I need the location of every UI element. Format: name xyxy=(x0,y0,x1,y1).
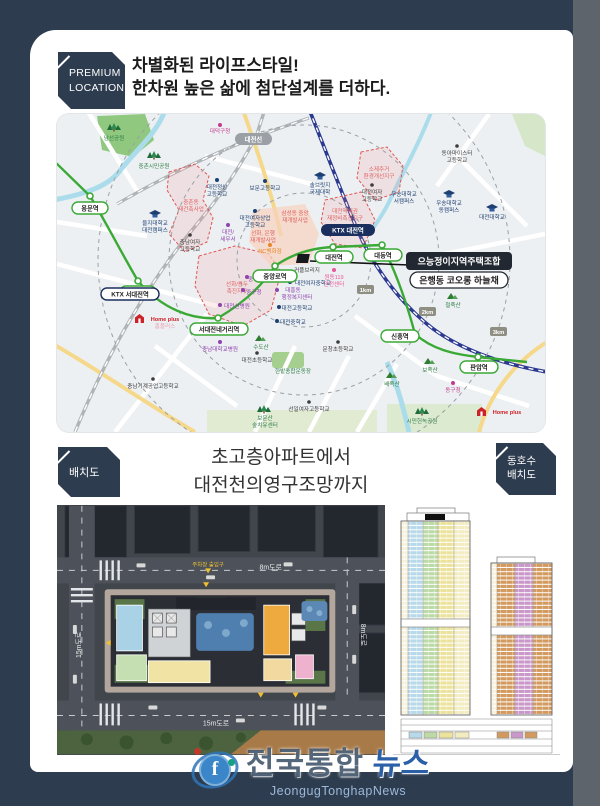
landmark-dot xyxy=(226,223,230,227)
landmark-label: 문창초등학교 xyxy=(323,345,354,353)
headline-line2: 한차원 높은 삶에 첨단설계를 더하다. xyxy=(132,77,390,100)
landmark-label: 충남여자 xyxy=(180,238,201,246)
legend-swatch-orange xyxy=(497,732,509,738)
mountain-label: 철죽산 xyxy=(445,301,460,309)
park-label: 숲치유센터 xyxy=(252,421,278,429)
landmark-label: 충남대학교병원 xyxy=(202,345,238,353)
unit-layout-badge-line1: 동호수 xyxy=(507,455,556,469)
landmark-label: 중구청 xyxy=(246,289,261,296)
road-label-right: 8m도로 xyxy=(359,624,367,647)
road-label-bottom: 15m도로 xyxy=(203,719,230,727)
landmark-label: 대전캠퍼스 xyxy=(142,226,168,234)
logo-dot-red xyxy=(194,748,201,755)
tower-right xyxy=(491,557,552,715)
unit-layout-badge: 동호수 배치도 xyxy=(496,443,556,495)
homeplus-label: Home plus xyxy=(151,317,180,323)
zone-label: 재정비촉진지구 xyxy=(327,214,363,222)
landmark-label: 대전중학교 xyxy=(280,318,306,326)
tower-left xyxy=(401,508,470,715)
zone-label: 선화/용두 xyxy=(226,280,248,288)
rail-label: 대전선 xyxy=(245,135,263,144)
landmark-label: 동아마이스터 xyxy=(442,149,473,157)
landmark-dot xyxy=(268,243,272,247)
landmark-dot xyxy=(332,268,336,272)
svg-text:서대전네거리역: 서대전네거리역 xyxy=(199,325,240,334)
watermark-title-part1: 전국통합 xyxy=(246,738,364,783)
legend-swatch-purple xyxy=(511,732,523,738)
location-map-svg: 남선공원 중촌시민공원 한밭종합운동장 보문산 숲치유센터 시민헌녹공원 수도산… xyxy=(57,114,545,432)
unit-layout-badge-line2: 배치도 xyxy=(507,469,556,483)
site-plan-badge-label: 배치도 xyxy=(69,464,120,480)
site-plan: 주차장 출입구 8m도로 15m도로 15m도로 8m도로 xyxy=(57,505,385,755)
landmark-label: 고등학교 xyxy=(447,156,468,164)
landmark-label: 대전대학교 xyxy=(479,213,505,221)
park-label: 보문산 xyxy=(257,414,272,422)
premium-location-badge: PREMIUM LOCATION xyxy=(58,52,125,109)
homeplus-sub-label: 홈플러스 xyxy=(155,322,176,330)
landmark-label: 고등학교 xyxy=(207,190,228,198)
zone-label: 중촌동 xyxy=(183,198,198,206)
landmark-label: 안전센터 xyxy=(324,280,345,288)
landmark-label: 솔브릿지 xyxy=(310,181,331,189)
landmark-dot xyxy=(275,319,279,323)
zone-label: 선화, 은행 xyxy=(251,229,275,237)
landmark-label: 국제대학 xyxy=(310,188,331,196)
zone-label: 삼성동 중앙 xyxy=(281,209,308,217)
road-label-left: 15m도로 xyxy=(75,631,83,658)
landmark-label: 선일여자고등학교 xyxy=(288,405,329,413)
landmark-label: 대전/ xyxy=(222,228,234,236)
landmark-label: 세무서 xyxy=(220,235,235,243)
unit-layout-chart xyxy=(393,505,560,755)
svg-text:중앙로역: 중앙로역 xyxy=(263,272,286,281)
landmark-label: 고등학교 xyxy=(245,221,266,229)
zone-label: 재개발사업 xyxy=(282,216,308,224)
landmark-label: 대덕구청 xyxy=(210,127,231,135)
landmark-label: 대전고등학교 xyxy=(282,304,313,312)
landmark-label: 대전초등학교 xyxy=(242,356,273,364)
landmark-label: 원동119 xyxy=(324,273,343,281)
park-label: 남선공원 xyxy=(104,134,125,142)
svg-text:KTX 대전역: KTX 대전역 xyxy=(332,226,364,235)
landmark-label: 보문고등학교 xyxy=(250,184,281,192)
watermark-text: 전국통합 뉴스 JeongugTonghapNews xyxy=(246,738,430,798)
legend-swatch-orange2 xyxy=(525,732,537,738)
zone-label: 재개발사업 xyxy=(250,236,276,244)
zone-label: 재건축사업 xyxy=(178,205,204,213)
flyer-card: PREMIUM LOCATION 차별화된 라이프스타일! 한차원 높은 삶에 … xyxy=(30,30,573,772)
mountain-label: 수도산 xyxy=(253,343,268,351)
landmark-dot xyxy=(218,303,222,307)
landmark-label: 고등학교 xyxy=(180,245,201,253)
svg-text:용문역: 용문역 xyxy=(81,204,99,213)
site-marker-icon xyxy=(296,254,310,263)
logo-circle: f xyxy=(199,754,231,786)
callout-line2: 은행동 코오롱 하늘채 xyxy=(419,275,499,286)
landmark-label: 우송대학교 xyxy=(391,190,417,198)
landmark-label: 동캠퍼스 xyxy=(439,206,460,214)
landmark-label: 고등학교 xyxy=(362,195,383,203)
section2-heading-line1: 초고층아파트에서 xyxy=(126,444,436,472)
landmark-dot xyxy=(263,179,267,183)
badge-line1: PREMIUM xyxy=(69,66,125,80)
landmark-label: 을지대학교 xyxy=(142,219,168,227)
zone-label: 환경개선지구 xyxy=(364,172,395,180)
mountain-label: 보족산 xyxy=(422,366,437,374)
headline-line1: 차별화된 라이프스타일! xyxy=(132,54,390,77)
landmark-dot xyxy=(277,305,281,309)
svg-text:신흥역: 신흥역 xyxy=(391,332,409,341)
landmark-dot xyxy=(455,144,459,148)
news-logo-icon: f xyxy=(190,745,236,791)
landmark-dot xyxy=(370,183,374,187)
site-plan-svg: 주차장 출입구 8m도로 15m도로 15m도로 8m도로 xyxy=(57,505,385,755)
site-marker-label: 커플브리지 xyxy=(294,266,320,274)
badge-line2: LOCATION xyxy=(69,81,125,95)
mountain-label: 배족산 xyxy=(384,380,399,388)
unit-layout-svg xyxy=(393,505,560,755)
landmark-dot xyxy=(218,123,222,127)
svg-text:3km: 3km xyxy=(493,330,505,336)
landmark-label: 우송대학교 xyxy=(436,199,462,207)
park-label: 한밭종합운동장 xyxy=(275,367,311,375)
svg-text:판암역: 판암역 xyxy=(470,363,488,372)
landmark-label: 대흥동 xyxy=(285,286,300,294)
landmark-dot xyxy=(307,400,311,404)
section2-heading: 초고층아파트에서 대전천의영구조망까지 xyxy=(126,444,436,499)
green-area-south xyxy=(207,410,377,432)
svg-text:대전역: 대전역 xyxy=(325,253,343,262)
zone-label: 대전역세권 xyxy=(332,207,358,215)
landmark-dot xyxy=(151,377,155,381)
badge-accent-line xyxy=(57,450,70,463)
landmark-label: 대전여자 xyxy=(362,188,383,196)
callout-line1: 으능정이지역주택조합 xyxy=(418,256,502,267)
landmark-dot xyxy=(241,288,245,292)
news-watermark: f 전국통합 뉴스 JeongugTonghapNews xyxy=(130,738,490,798)
landmark-label: 대전여자상업 xyxy=(240,214,271,222)
park-label: 중촌시민공원 xyxy=(139,162,170,170)
landmark-label: NC백화점 xyxy=(258,247,282,255)
landmark-dot xyxy=(253,209,257,213)
svg-text:KTX 서대전역: KTX 서대전역 xyxy=(111,290,149,299)
watermark-subtitle: JeongugTonghapNews xyxy=(270,784,406,798)
headline: 차별화된 라이프스타일! 한차원 높은 삶에 첨단설계를 더하다. xyxy=(132,54,390,101)
frame-right-strip xyxy=(573,0,600,806)
landmark-label: 대전정상 xyxy=(207,183,228,191)
landmark-dot xyxy=(336,340,340,344)
landmark-dot xyxy=(188,233,192,237)
gate-label: 주차장 출입구 xyxy=(192,560,224,568)
landmark-label: 대전선병원 xyxy=(224,302,250,310)
landmark-dot xyxy=(275,288,279,292)
landmark-label: 행정복지센터 xyxy=(282,293,313,301)
watermark-title-part2: 뉴스 xyxy=(371,738,433,783)
svg-text:대동역: 대동역 xyxy=(374,251,392,260)
homeplus-label: Home plus xyxy=(493,410,522,416)
landmark-dot xyxy=(255,351,259,355)
landmark-dot xyxy=(451,381,455,385)
logo-dot-teal xyxy=(228,759,235,766)
landmark-label: 서캠퍼스 xyxy=(394,197,415,205)
landmark-label: 충남기계공업고등학교 xyxy=(127,382,178,390)
location-map: 남선공원 중촌시민공원 한밭종합운동장 보문산 숲치유센터 시민헌녹공원 수도산… xyxy=(57,114,545,432)
site-plan-badge: 배치도 xyxy=(58,447,120,497)
section2-heading-line2: 대전천의영구조망까지 xyxy=(126,472,436,500)
park-label: 시민헌녹공원 xyxy=(407,417,438,425)
landmark-label: 동구청 xyxy=(445,387,460,394)
landmark-dot xyxy=(215,178,219,182)
project-callout: 으능정이지역주택조합 은행동 코오롱 하늘채 xyxy=(406,252,512,288)
landmark-dot xyxy=(218,340,222,344)
zone-label: 소제주거 xyxy=(369,165,390,173)
road-label-top: 8m도로 xyxy=(259,563,282,571)
svg-text:2km: 2km xyxy=(422,310,434,316)
svg-text:1km: 1km xyxy=(360,288,372,294)
watermark-title: 전국통합 뉴스 xyxy=(246,738,430,783)
